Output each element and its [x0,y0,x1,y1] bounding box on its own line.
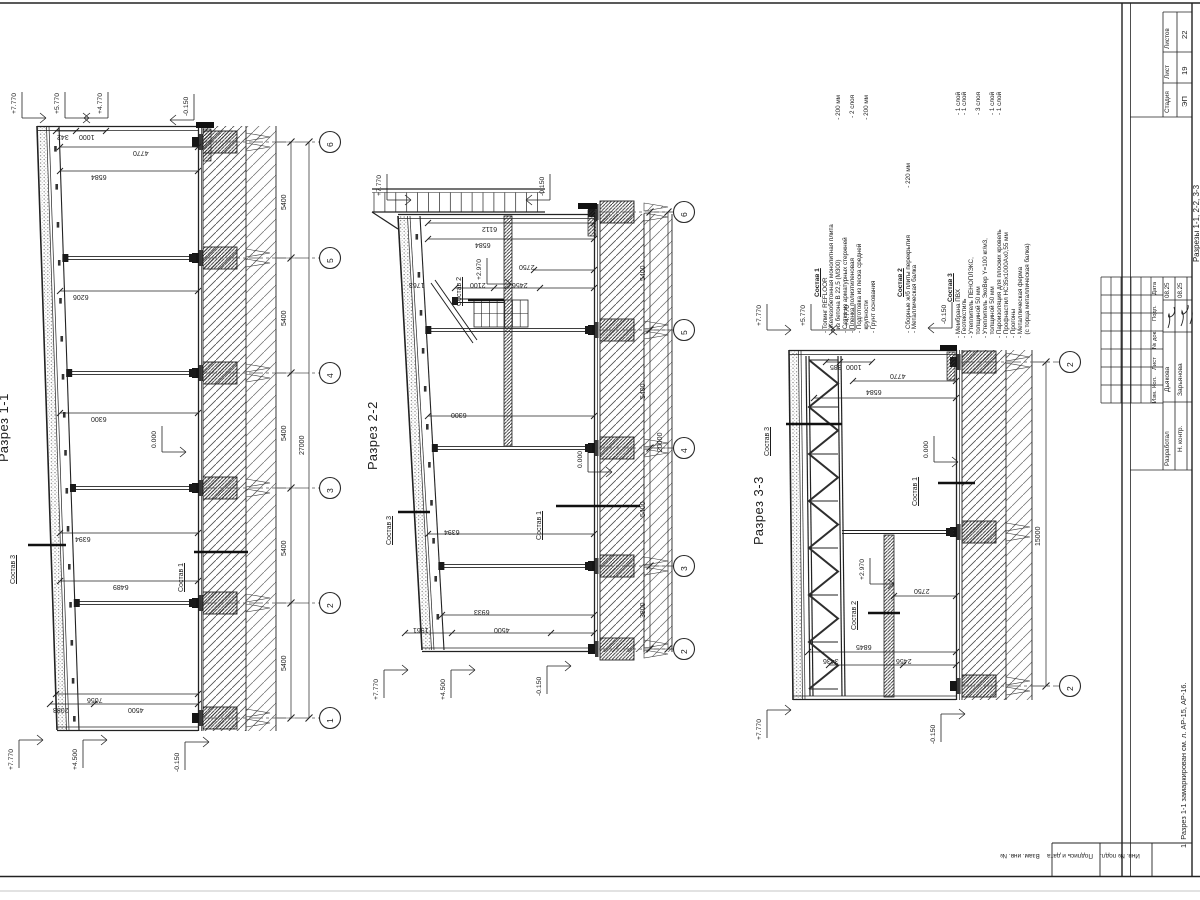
stamp-listov-value: 22 [1181,31,1189,39]
dimension-label: 5400 [640,501,647,517]
section-title: Разрез 2-2 [366,401,379,470]
dimension-label: 6300 [451,411,467,418]
dimension-label: 6394 [75,535,91,542]
dimension-label: 6845 [856,643,872,650]
elevation-mark: 0.000 [924,441,931,458]
dimension-label: 5400 [281,540,288,556]
dimension-label: 1000 [79,133,95,140]
composition-item-value: - 220 мм [906,163,913,188]
axis-bubble-label: 2 [680,649,689,654]
axis-bubble-label: 1 [326,718,335,723]
elevation-mark: +4.500 [73,749,80,770]
section-title: Разрез 1-1 [0,393,10,462]
composition-item: - Подготовка из песка средней [857,95,864,333]
dimension-label: 1763 [409,281,425,288]
dimension-label: 27000 [299,436,306,455]
elevation-mark: +2.970 [860,559,867,580]
elevation-mark: +7.770 [9,749,16,770]
axis-bubble-label: 2 [1066,362,1075,367]
axis-bubble-label: 3 [326,488,335,493]
dimension-label: 2456 [896,657,912,664]
elevation-mark: 0.000 [152,431,159,448]
elevation-mark: +7.770 [757,305,764,326]
composition-item-value: - 1 слой [997,92,1004,115]
dimension-label: 3800 [640,602,647,618]
composition-item-value: - 200 мм [864,95,871,120]
axis-bubble-label: 2 [326,603,335,608]
elevation-mark: +7.770 [757,719,764,740]
stamp-role: Н. контр. [1178,426,1184,452]
stamp-doc-name: Разрезы 1-1, 2-2, 3-3 [1193,185,1200,262]
composition-ref-label: Состав 2 [851,601,858,630]
dimension-label: 5400 [281,655,288,671]
stamp-name: Дьякова [1165,367,1172,392]
composition-title: Состав 1 [814,95,821,297]
elevation-mark: +5.770 [55,93,62,114]
composition-ref-label: Состав 1 [912,477,919,506]
stamp-list-label: Лист [1165,65,1171,79]
stamp-listov-label: Листов [1165,28,1171,49]
axis-bubble-label: 5 [680,330,689,335]
elevation-mark: -0.150 [537,677,544,696]
composition-note-3: Состав 3- Мембрана ПВХ- 1 слой- Геотекст… [947,92,1031,338]
dimension-label: 6933 [474,608,490,615]
dimension-label: 6112 [482,225,497,232]
elevation-mark: +7.770 [377,175,384,196]
axis-bubble-label: 2 [1066,686,1075,691]
drawing-sheet: 3421000477065846206630063946489705620834… [0,0,1200,900]
rev-header: № док. [1153,330,1159,349]
dimension-label: 6394 [444,528,460,535]
general-note: 1. Разрез 1-1 замаркирован см. л. АР-15,… [1180,682,1187,848]
composition-item-value: - 1 слой [962,92,969,115]
elevation-mark: +2.970 [477,259,484,280]
dimension-label: 6206 [73,293,89,300]
dimension-label: 5400 [640,383,647,399]
composition-item-value: - 2 слоя [850,95,857,118]
dimension-label: 6584 [866,388,882,395]
dimension-label: 5400 [281,194,288,210]
composition-item-value: - 200 мм [836,95,843,120]
composition-item-text: - Грунт основания [871,281,878,333]
composition-ref-label: Состав 2 [456,277,463,306]
rev-header: Изм. [1153,390,1159,403]
stamp-role: Разработал [1165,431,1171,466]
stamp-date: 08.25 [1178,283,1184,298]
dimension-label: 4770 [133,149,149,156]
dimension-label: 6584 [91,173,107,180]
dimension-label: 6300 [91,415,107,422]
composition-note-1: Состав 1- Топинг REFLOOR- Железобетонная… [814,95,878,333]
margin-field: Взам. инв. № [992,852,1048,858]
composition-ref-label: Состав 3 [386,516,393,545]
dimension-label: 2100 [470,281,486,288]
dimension-label: 4770 [890,372,906,379]
dimension-label: 6584 [475,241,491,248]
dimension-label: 7056 [87,696,103,703]
rev-header: Дата [1153,282,1159,295]
dimension-label: 3436 [823,657,839,664]
elevation-mark: +5.770 [801,305,808,326]
elevation-mark: -0.150 [175,753,182,772]
composition-item: - Грунт основания [871,95,878,333]
stamp-name: Зарьянова [1178,363,1185,396]
axis-bubble-label: 3 [680,566,689,571]
elevation-mark: -0.150 [184,97,191,116]
axis-bubble-label: 6 [326,142,335,147]
rev-header: Лист [1153,357,1159,370]
axis-bubble-label: 5 [326,258,335,263]
dimension-label: 342 [57,133,69,140]
elevation-mark: +4.500 [441,679,448,700]
composition-ref-label: Состав 1 [536,511,543,540]
stamp-date: 08.25 [1165,283,1171,298]
dimension-label: 4500 [128,706,144,713]
composition-ref-label: Состав 1 [178,563,185,592]
margin-field: Инв. № подл. [1092,852,1148,858]
section-title: Разрез 3-3 [752,476,765,545]
dimension-label: 5400 [640,265,647,281]
stamp-stadia-label: Стадия [1165,91,1171,113]
dimension-label: 20000 [657,433,664,452]
elevation-mark: +7.770 [374,679,381,700]
dimension-label: 2083 [53,706,69,713]
rev-header: Кол. [1153,376,1159,388]
axis-bubble-label: 4 [326,373,335,378]
composition-note-2: Состав 2- Сборные ж/б плиты перекрытия- … [897,163,919,333]
dimension-label: 385 [830,363,842,370]
dimension-label: 4500 [494,626,510,633]
axis-bubble-label: 6 [680,212,689,217]
elevation-mark: -0.150 [540,177,547,196]
stamp-list-value: 19 [1181,67,1189,75]
elevation-mark: -0.150 [931,725,938,744]
dimension-label: 1000 [846,363,862,370]
dimension-label: 2456 [512,281,528,288]
stamp-stadia-value: ЭП [1181,96,1189,107]
rev-header: Подп. [1153,305,1159,321]
composition-item: (с торца металлическая балка) [1025,92,1032,338]
elevation-mark: +4.770 [98,93,105,114]
dimension-label: 2750 [914,587,930,594]
dimension-label: 5400 [281,425,288,441]
axis-bubble-label: 4 [680,448,689,453]
margin-field: Подпись и дата [1042,852,1098,858]
dimension-label: 6489 [113,583,129,590]
composition-item: - Профнастил НС35х1000Ах0,55 мм [1004,92,1011,338]
dimension-label: 5400 [281,310,288,326]
composition-item-text: (с торца металлическая балка) [1025,243,1032,338]
elevation-mark: +7.770 [12,93,19,114]
composition-item-value: - 3 слоя [976,92,983,115]
composition-ref-label: Состав 3 [764,427,771,456]
dimension-label: 15000 [1035,527,1042,546]
dimension-label: 2750 [519,263,535,270]
composition-title: Состав 3 [947,92,954,302]
composition-item: - Металлическая балка [912,163,919,333]
composition-ref-label: Состав 3 [10,555,17,584]
composition-title: Состав 2 [897,163,904,297]
composition-item-text: - Металлическая балка [912,265,919,333]
dimension-label: 1961 [413,626,429,633]
elevation-mark: 0.000 [578,451,585,468]
